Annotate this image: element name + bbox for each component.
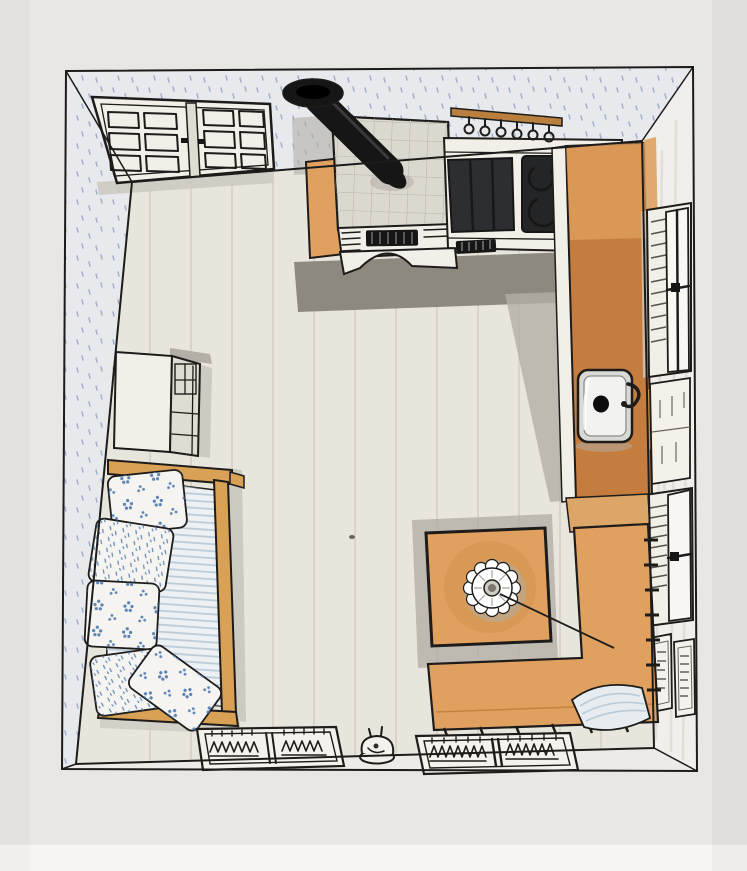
rug-left bbox=[197, 727, 344, 770]
door-handle bbox=[181, 138, 188, 143]
shuttered-panel bbox=[650, 378, 690, 484]
sink bbox=[576, 370, 639, 452]
photo-of-sketch bbox=[0, 0, 747, 871]
double-door bbox=[92, 97, 274, 183]
worktop-dark-panel bbox=[448, 158, 514, 232]
stove-vent-grille bbox=[366, 230, 418, 247]
cushion-floral bbox=[84, 580, 159, 650]
cupboard-top bbox=[114, 352, 172, 452]
floor-mark bbox=[349, 535, 355, 539]
papers-on-bench bbox=[572, 685, 650, 730]
kitchen-floorplan-sketch bbox=[0, 0, 747, 871]
sink-drain bbox=[593, 396, 609, 413]
window-upper bbox=[647, 203, 691, 377]
cupboard bbox=[114, 348, 212, 458]
